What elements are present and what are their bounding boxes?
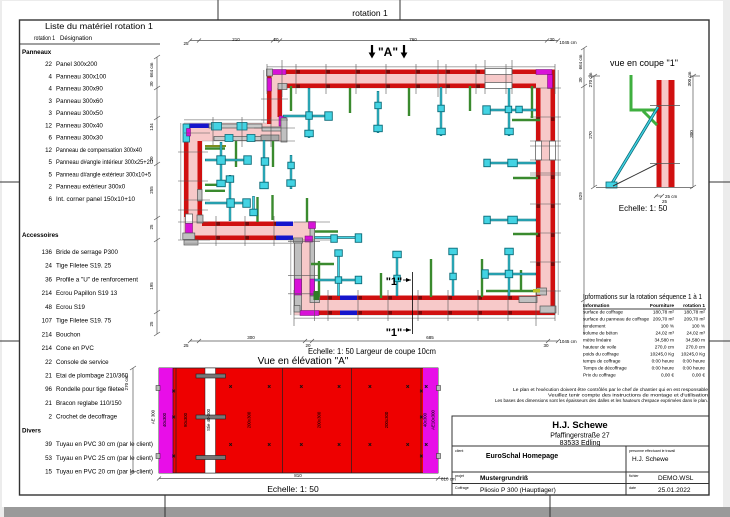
svg-text:mètre linéaire: mètre linéaire — [583, 338, 612, 343]
svg-text:Console de service: Console de service — [56, 359, 109, 366]
svg-text:Accessoires: Accessoires — [22, 232, 59, 239]
svg-text:Bouchon: Bouchon — [56, 331, 81, 338]
svg-text:2: 2 — [49, 184, 53, 191]
svg-text:Echelle: 1: 50: Echelle: 1: 50 — [619, 204, 668, 213]
svg-text:Panneau 300x40: Panneau 300x40 — [56, 122, 103, 129]
svg-text:200x300: 200x300 — [317, 411, 322, 428]
svg-text:date: date — [629, 486, 636, 490]
svg-text:surface du panneau de coffrage: surface du panneau de coffrage — [583, 317, 650, 322]
svg-text:300: 300 — [247, 335, 255, 340]
svg-text:Etai de plombage 210/360: Etai de plombage 210/360 — [56, 373, 129, 380]
svg-text:629: 629 — [578, 192, 583, 200]
svg-text:5: 5 — [49, 171, 53, 178]
svg-text:Ecrou Papillon S19 13: Ecrou Papillon S19 13 — [56, 290, 118, 297]
svg-text:Panneau 300x90: Panneau 300x90 — [56, 86, 103, 93]
svg-text:Panel 300x200: Panel 300x200 — [56, 61, 98, 68]
svg-text:0:00 heure: 0:00 heure — [683, 366, 706, 371]
svg-text:300: 300 — [689, 130, 694, 138]
svg-text:H.J. Schewe: H.J. Schewe — [552, 420, 607, 431]
svg-text:2: 2 — [49, 414, 53, 421]
svg-text:30: 30 — [549, 37, 555, 42]
svg-text:rendement: rendement — [583, 324, 606, 329]
svg-text:200x300: 200x300 — [384, 411, 389, 428]
svg-text:0,00 €: 0,00 € — [661, 373, 674, 378]
svg-text:25: 25 — [149, 321, 154, 327]
svg-text:20: 20 — [273, 37, 279, 42]
svg-text:temps de coffrage: temps de coffrage — [583, 359, 621, 364]
svg-text:100 %: 100 % — [692, 324, 705, 329]
svg-text:Panneau 300x50: Panneau 300x50 — [56, 110, 103, 117]
svg-text:projet: projet — [455, 474, 464, 478]
svg-text:136: 136 — [42, 249, 53, 256]
svg-text:fichier: fichier — [629, 474, 639, 478]
svg-text:36: 36 — [45, 276, 52, 283]
svg-text:Int. corner panel 150x10+10: Int. corner panel 150x10+10 — [56, 196, 136, 203]
svg-text:Tuyau en PVC 30 cm (par le cli: Tuyau en PVC 30 cm (par le client) — [56, 441, 153, 448]
svg-text:810 cm: 810 cm — [441, 477, 456, 482]
svg-text:300 cm: 300 cm — [687, 71, 692, 86]
svg-text:Panneau extérieur 300x0: Panneau extérieur 300x0 — [56, 184, 126, 191]
svg-text:3: 3 — [49, 98, 53, 105]
svg-text:180,78 m²: 180,78 m² — [684, 310, 706, 315]
svg-text:12: 12 — [45, 122, 52, 129]
svg-text:volume de béton: volume de béton — [583, 331, 618, 336]
svg-text:Panneau 300x60: Panneau 300x60 — [56, 98, 103, 105]
svg-text:Informations sur la rotation: Informations sur la rotation séquence 1 … — [583, 292, 702, 301]
svg-text:810: 810 — [294, 473, 302, 478]
svg-text:270: 270 — [588, 131, 593, 139]
svg-text:270 cm: 270 cm — [124, 375, 129, 390]
svg-text:6: 6 — [49, 135, 53, 142]
svg-text:270 cm: 270 cm — [588, 72, 593, 87]
svg-text:Ecrou S19: Ecrou S19 — [56, 304, 85, 311]
svg-text:Désignation: Désignation — [60, 35, 92, 42]
svg-text:DEMO.WSL: DEMO.WSL — [658, 475, 694, 482]
svg-text:Tige Filetee S19. 75: Tige Filetee S19. 75 — [56, 318, 112, 325]
svg-text:rotation 1: rotation 1 — [34, 35, 55, 42]
svg-text:53: 53 — [45, 455, 52, 462]
svg-text:25: 25 — [183, 41, 189, 46]
svg-text:surface de coffrage: surface de coffrage — [583, 310, 623, 315]
svg-text:210: 210 — [232, 37, 240, 42]
svg-text:Stie 40-300: Stie 40-300 — [206, 408, 211, 431]
svg-text:25: 25 — [183, 343, 189, 348]
svg-text:client: client — [455, 449, 463, 453]
svg-text:195: 195 — [149, 282, 154, 290]
svg-text:180,78 m²: 180,78 m² — [653, 310, 675, 315]
svg-text:Panneau de compensation 300x40: Panneau de compensation 300x40 — [56, 147, 142, 154]
svg-text:Tige Filetee S19. 25: Tige Filetee S19. 25 — [56, 263, 112, 270]
svg-text:Panneau d#angle intérieur 300x: Panneau d#angle intérieur 300x25+20 — [56, 159, 154, 166]
svg-text:personne effectuant le travail: personne effectuant le travail — [629, 449, 675, 453]
svg-text:rotation 1: rotation 1 — [352, 8, 388, 18]
svg-text:Tuyau en PVC 20 cm (par le cli: Tuyau en PVC 20 cm (par le client) — [56, 469, 153, 476]
svg-text:"1": "1" — [386, 327, 403, 339]
svg-text:Les bases des dimensions sont: Les bases des dimensions sont les épaiss… — [495, 398, 708, 403]
svg-text:22: 22 — [45, 359, 52, 366]
svg-text:1045 cm: 1045 cm — [559, 339, 577, 344]
svg-text:30: 30 — [543, 343, 549, 348]
svg-text:24,02 m³: 24,02 m³ — [656, 331, 675, 336]
svg-text:83533 Edling: 83533 Edling — [560, 440, 601, 447]
svg-text:0:00 heure: 0:00 heure — [652, 366, 675, 371]
svg-text:214: 214 — [42, 290, 53, 297]
svg-text:Prix du coffrage: Prix du coffrage — [583, 373, 616, 378]
svg-text:134: 134 — [149, 123, 154, 131]
svg-text:rotation 1: rotation 1 — [683, 303, 705, 309]
svg-text:21: 21 — [45, 400, 52, 407]
svg-text:Divers: Divers — [22, 427, 41, 434]
svg-text:20: 20 — [149, 156, 154, 162]
svg-text:39: 39 — [45, 441, 52, 448]
svg-text:209,70 m²: 209,70 m² — [684, 317, 706, 322]
svg-text:25.01.2022: 25.01.2022 — [658, 487, 691, 494]
svg-text:Echelle: 1: 50: Echelle: 1: 50 — [267, 484, 319, 494]
svg-text:22: 22 — [45, 61, 52, 68]
svg-text:Panneau 300x100: Panneau 300x100 — [56, 73, 107, 80]
svg-text:30: 30 — [149, 81, 154, 87]
svg-text:H.J. Schewe: H.J. Schewe — [632, 456, 669, 463]
svg-text:664 cm: 664 cm — [149, 62, 154, 77]
svg-text:0:00 heure: 0:00 heure — [683, 359, 706, 364]
svg-text:Pliosio P 300 (Hauptlager): Pliosio P 300 (Hauptlager) — [480, 487, 556, 494]
svg-text:Profile a "U" de renforcement: Profile a "U" de renforcement — [56, 276, 138, 283]
svg-text:0:00 heure: 0:00 heure — [652, 359, 675, 364]
svg-text:Liste du matériel rotation 1: Liste du matériel rotation 1 — [45, 21, 153, 31]
svg-text:12: 12 — [45, 147, 52, 154]
svg-text:Mustergrundriß: Mustergrundriß — [480, 475, 528, 482]
svg-text:AE 300: AE 300 — [151, 409, 156, 424]
svg-text:34,580 m: 34,580 m — [685, 338, 705, 343]
svg-text:214: 214 — [42, 345, 53, 352]
svg-text:Panneaux: Panneaux — [22, 49, 52, 56]
svg-text:AE10x300: AE10x300 — [431, 409, 436, 429]
svg-text:Tuyau en PVC 25 cm (par le cli: Tuyau en PVC 25 cm (par le client) — [56, 455, 153, 462]
svg-text:Crochet de decoffrage: Crochet de decoffrage — [56, 414, 118, 421]
svg-text:Rondelle pour tige filetee: Rondelle pour tige filetee — [56, 386, 125, 393]
svg-text:270,0 cm: 270,0 cm — [686, 345, 705, 350]
svg-text:24: 24 — [45, 263, 52, 270]
svg-text:vue en coupe "1": vue en coupe "1" — [610, 58, 678, 68]
svg-text:209,70 m²: 209,70 m² — [653, 317, 675, 322]
svg-text:"A": "A" — [378, 45, 398, 59]
svg-text:Vue en élévation "A": Vue en élévation "A" — [258, 356, 349, 367]
svg-text:48: 48 — [45, 304, 52, 311]
svg-text:21: 21 — [45, 373, 52, 380]
svg-text:270,0 cm: 270,0 cm — [655, 345, 674, 350]
svg-text:Bride de serrage P300: Bride de serrage P300 — [56, 249, 118, 256]
svg-text:poids du coffrage: poids du coffrage — [583, 352, 619, 357]
svg-text:255: 255 — [149, 186, 154, 194]
svg-text:200x300: 200x300 — [247, 411, 252, 428]
svg-text:EuroSchal Homepage: EuroSchal Homepage — [486, 453, 558, 460]
svg-text:Cone en PVC: Cone en PVC — [56, 345, 94, 352]
svg-text:10245,0 Kg: 10245,0 Kg — [681, 352, 705, 357]
svg-text:214: 214 — [42, 331, 53, 338]
svg-text:685: 685 — [426, 335, 434, 340]
svg-text:Information: Information — [583, 303, 609, 309]
svg-text:15: 15 — [45, 469, 52, 476]
svg-text:Echelle: 1: 50 Largeur de co: Echelle: 1: 50 Largeur de coupe 10cm — [308, 347, 436, 356]
svg-text:Panneau 300x30: Panneau 300x30 — [56, 135, 103, 142]
svg-text:5: 5 — [49, 159, 53, 166]
svg-text:Pfaffingerstraße 27: Pfaffingerstraße 27 — [550, 433, 610, 440]
svg-text:24,02 m³: 24,02 m³ — [687, 331, 706, 336]
svg-text:hauteur de voile: hauteur de voile — [583, 345, 617, 350]
svg-text:40x300: 40x300 — [423, 412, 428, 427]
svg-text:96: 96 — [45, 386, 52, 393]
svg-text:Bracon reglabe 110/150: Bracon reglabe 110/150 — [56, 400, 122, 407]
svg-text:6: 6 — [49, 196, 53, 203]
svg-text:1045 cm: 1045 cm — [559, 40, 577, 45]
svg-text:Fourniture: Fourniture — [650, 303, 674, 309]
svg-text:3: 3 — [49, 110, 53, 117]
svg-text:100 %: 100 % — [661, 324, 674, 329]
svg-text:Le plan et l'exécution doivent: Le plan et l'exécution doivent être cont… — [513, 387, 709, 392]
svg-text:664 cm: 664 cm — [578, 54, 583, 69]
svg-text:760: 760 — [409, 37, 417, 42]
svg-text:4: 4 — [49, 86, 53, 93]
svg-text:90x300: 90x300 — [183, 412, 188, 427]
svg-text:Coffrage: Coffrage — [455, 486, 469, 490]
svg-text:Temps de décoffrage: Temps de décoffrage — [583, 366, 627, 371]
svg-text:34,580 m: 34,580 m — [654, 338, 674, 343]
svg-text:"1": "1" — [386, 276, 403, 288]
svg-text:0,00 €: 0,00 € — [692, 373, 705, 378]
svg-text:107: 107 — [42, 318, 53, 325]
svg-text:40x300: 40x300 — [162, 412, 167, 427]
svg-text:Panneau d#angle extérieur 300x: Panneau d#angle extérieur 300x10+5 — [56, 171, 152, 178]
svg-text:4: 4 — [49, 73, 53, 80]
svg-text:10245,0 Kg: 10245,0 Kg — [650, 352, 674, 357]
svg-text:25: 25 — [149, 224, 154, 230]
svg-text:30: 30 — [578, 77, 583, 83]
svg-text:Veuillez tenir compte des inst: Veuillez tenir compte des instructions d… — [548, 393, 709, 398]
